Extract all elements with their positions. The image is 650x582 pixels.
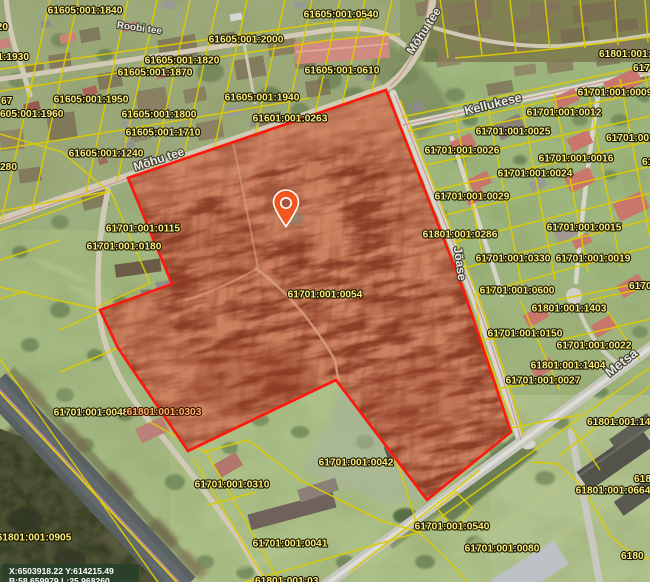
- svg-text:61605:001:0540: 61605:001:0540: [304, 10, 379, 21]
- svg-text:61701:001:0080: 61701:001:0080: [465, 544, 540, 555]
- svg-text:61701:001:0600: 61701:001:0600: [480, 286, 555, 297]
- svg-text:61701:001:0022: 61701:001:0022: [557, 341, 632, 352]
- svg-text:280: 280: [0, 162, 17, 173]
- svg-text:20: 20: [0, 22, 8, 33]
- svg-text:605:001:1960: 605:001:1960: [0, 109, 64, 120]
- svg-text:61605:001:1840: 61605:001:1840: [48, 6, 123, 17]
- svg-text:6170: 6170: [629, 281, 650, 292]
- svg-text:61801:001:142: 61801:001:142: [587, 417, 650, 428]
- svg-text:61701:001:0330: 61701:001:0330: [476, 254, 551, 265]
- svg-text:1:1930: 1:1930: [0, 52, 29, 63]
- svg-text:61701:001:0150: 61701:001:0150: [488, 329, 563, 340]
- svg-text:61701:001:0180: 61701:001:0180: [87, 242, 162, 253]
- svg-text:X:6503918.22 Y:614215.49: X:6503918.22 Y:614215.49: [9, 566, 114, 576]
- svg-text:61701:001:0027: 61701:001:0027: [506, 376, 581, 387]
- svg-text:61605:001:1870: 61605:001:1870: [118, 68, 193, 79]
- svg-text:61801:001:0303: 61801:001:0303: [127, 407, 202, 418]
- svg-text:61801:001:03: 61801:001:03: [255, 576, 319, 582]
- svg-text:6180: 6180: [621, 551, 644, 562]
- svg-text:61701:001:0025: 61701:001:0025: [476, 127, 551, 138]
- svg-text:61701:001:0: 61701:001:0: [606, 133, 650, 144]
- svg-text:61701:001:0016: 61701:001:0016: [539, 154, 614, 165]
- svg-text:61605:001:0610: 61605:001:0610: [305, 66, 380, 77]
- svg-text:61605:001:1800: 61605:001:1800: [122, 110, 197, 121]
- svg-text:61701:001:0048: 61701:001:0048: [54, 408, 129, 419]
- svg-text:61605:001:1820: 61605:001:1820: [145, 56, 220, 67]
- svg-text:61701:001:0012: 61701:001:0012: [527, 108, 602, 119]
- svg-text:61701:001:0029: 61701:001:0029: [435, 192, 510, 203]
- svg-text:67: 67: [1, 96, 13, 107]
- svg-text:61701:001:0115: 61701:001:0115: [106, 224, 181, 235]
- svg-text:61701:001:0054: 61701:001:0054: [288, 290, 363, 301]
- svg-text:61701:001:0540: 61701:001:0540: [415, 522, 490, 533]
- svg-text:61701:001:0026: 61701:001:0026: [425, 146, 500, 157]
- svg-text:61701:001:0310: 61701:001:0310: [195, 480, 270, 491]
- svg-text:61701:001:0024: 61701:001:0024: [498, 169, 573, 180]
- svg-text:61801:001:0286: 61801:001:0286: [423, 230, 498, 241]
- svg-text:61801:001:05: 61801:001:05: [599, 49, 650, 60]
- svg-text:61701:001:0015: 61701:001:0015: [547, 223, 622, 234]
- svg-text:61605:001:1240: 61605:001:1240: [69, 149, 144, 160]
- svg-text:61801:001:1404: 61801:001:1404: [531, 361, 606, 372]
- svg-text:61801:001:0664: 61801:001:0664: [576, 486, 650, 497]
- svg-text:61: 61: [642, 157, 650, 168]
- svg-text:61701:001:0019: 61701:001:0019: [556, 254, 631, 265]
- svg-text:61605:001:1940: 61605:001:1940: [225, 93, 300, 104]
- svg-text:6180: 6180: [634, 474, 650, 485]
- svg-text:B:58.659979 L:25.968260: B:58.659979 L:25.968260: [9, 576, 110, 582]
- svg-text:61605:001:1950: 61605:001:1950: [54, 95, 129, 106]
- svg-text:61601:001:0263: 61601:001:0263: [253, 114, 328, 125]
- svg-text:6170: 6170: [633, 63, 650, 74]
- svg-text:61801:001:0905: 61801:001:0905: [0, 533, 72, 544]
- svg-text:61605:001:1710: 61605:001:1710: [126, 128, 201, 139]
- svg-text:61801:001:1403: 61801:001:1403: [532, 304, 607, 315]
- svg-text:61701:001:0009: 61701:001:0009: [578, 88, 650, 99]
- svg-text:61701:001:0041: 61701:001:0041: [253, 539, 328, 550]
- svg-text:61701:001:0042: 61701:001:0042: [319, 458, 394, 469]
- svg-text:61605:001:2000: 61605:001:2000: [209, 35, 284, 46]
